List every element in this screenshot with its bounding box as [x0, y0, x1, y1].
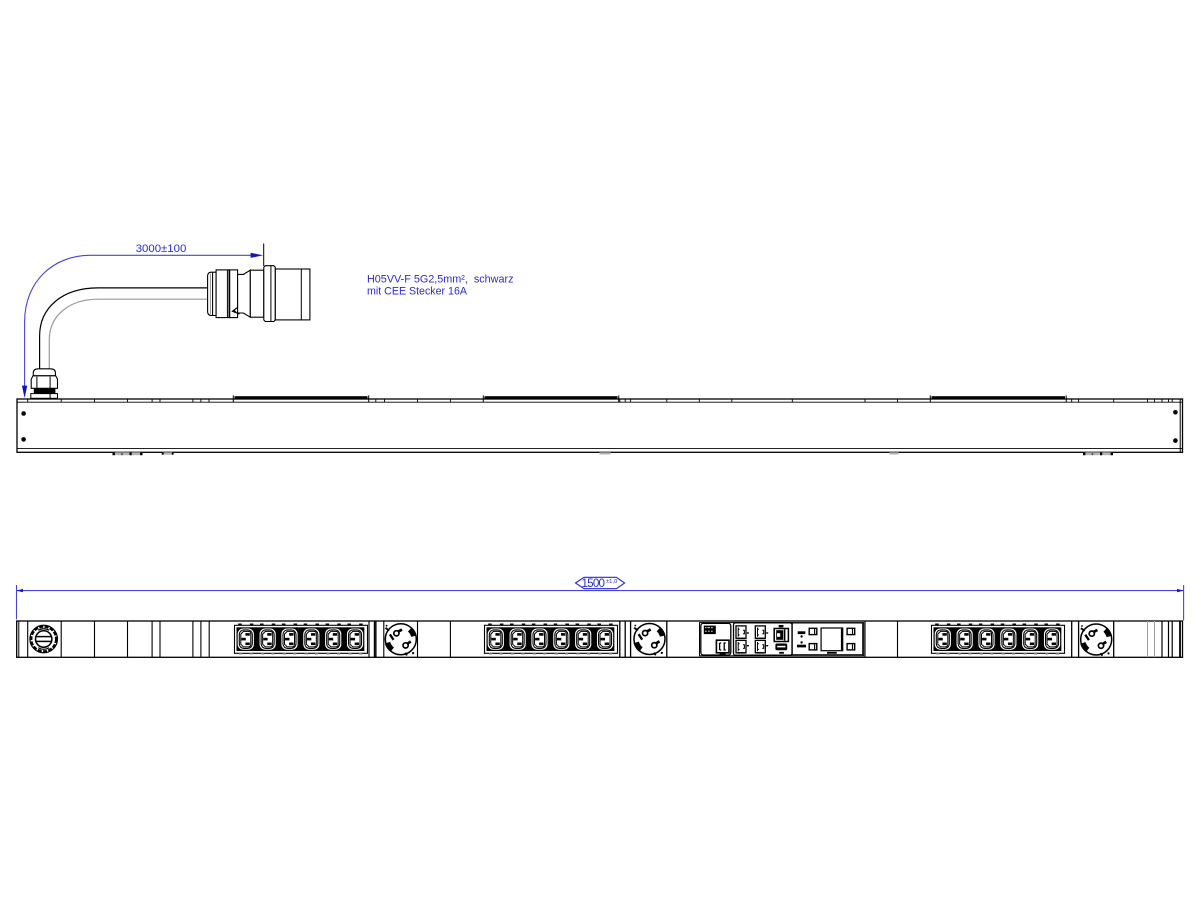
- svg-text:H05VV-F 5G2,5mm², schwarz: H05VV-F 5G2,5mm², schwarz: [367, 274, 514, 286]
- svg-text:1500: 1500: [582, 577, 606, 590]
- svg-text:±1,0: ±1,0: [606, 579, 617, 585]
- svg-text:mit CEE Stecker 16A: mit CEE Stecker 16A: [367, 286, 467, 298]
- svg-text:3000±100: 3000±100: [136, 243, 187, 255]
